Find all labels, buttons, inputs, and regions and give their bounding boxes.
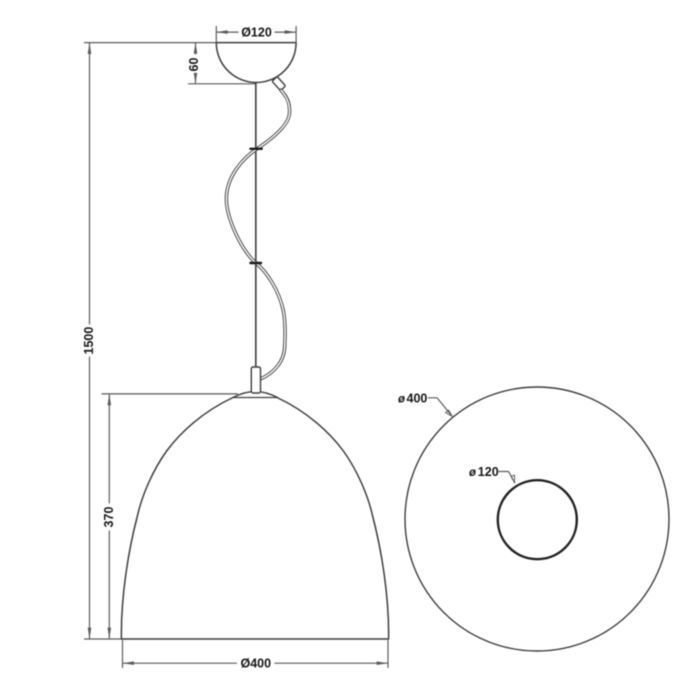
svg-text:Ø400: Ø400 — [241, 657, 272, 671]
svg-text:ø: ø — [469, 467, 476, 479]
svg-text:120: 120 — [478, 465, 499, 479]
svg-text:Ø120: Ø120 — [241, 25, 272, 39]
svg-text:370: 370 — [102, 507, 116, 528]
svg-text:ø: ø — [398, 393, 405, 405]
svg-text:1500: 1500 — [82, 327, 96, 355]
svg-text:60: 60 — [187, 58, 201, 72]
svg-text:400: 400 — [407, 391, 428, 405]
